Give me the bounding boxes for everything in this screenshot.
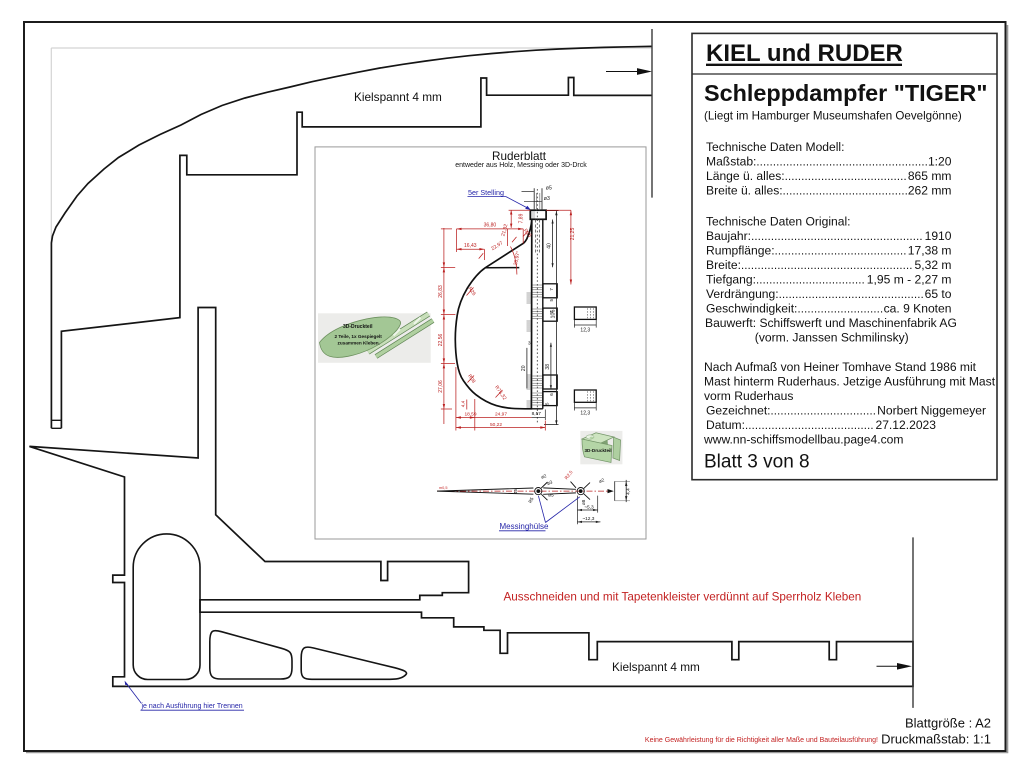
svg-text:65 to: 65 to [925,287,952,301]
svg-text:Länge ü. alles:: Länge ü. alles: [706,169,785,183]
svg-text:4,4: 4,4 [626,488,632,495]
svg-text:21,25: 21,25 [570,228,576,241]
svg-text:40: 40 [547,243,553,249]
svg-text:Breite:: Breite: [706,258,741,272]
svg-text:27,06: 27,06 [438,380,444,393]
svg-text:3: 3 [528,341,531,346]
svg-text:(vorm. Janssen Schmilinsky): (vorm. Janssen Schmilinsky) [755,331,909,345]
svg-text:Bauwerft: Schiffswerft und Mas: Bauwerft: Schiffswerft und Maschinenfabr… [705,316,957,330]
svg-text:Technische Daten Modell:: Technische Daten Modell: [706,140,844,154]
svg-text:7,89: 7,89 [518,213,524,223]
svg-text:Gezeichnet:: Gezeichnet: [706,404,771,418]
svg-text:26,83: 26,83 [438,285,444,298]
svg-text:262 mm: 262 mm [908,184,952,198]
svg-text:24,97: 24,97 [495,412,507,418]
svg-text:Mast hinterm Ruderhaus. Jetzig: Mast hinterm Ruderhaus. Jetzige Ausführu… [704,375,996,389]
svg-text:KIEL und RUDER: KIEL und RUDER [706,40,903,67]
svg-text:18,59: 18,59 [465,412,477,418]
svg-text:4,4: 4,4 [460,400,465,407]
svg-text:12,3: 12,3 [580,328,590,334]
svg-text:zusammen Kleben.: zusammen Kleben. [338,340,380,345]
svg-text:20: 20 [521,365,527,371]
svg-text:Kielspannt 4 mm: Kielspannt 4 mm [354,90,442,104]
svg-text:ø3: ø3 [544,196,550,202]
svg-text:Tiefgang:: Tiefgang: [706,273,756,287]
svg-text:Baujahr:: Baujahr: [706,229,751,243]
svg-text:Blattgröße : A2: Blattgröße : A2 [905,716,991,731]
svg-text:5er Stelling: 5er Stelling [468,188,504,197]
svg-text:8,57: 8,57 [532,411,542,417]
svg-text:36,80: 36,80 [484,223,497,229]
svg-text:Blatt 3 von 8: Blatt 3 von 8 [704,452,810,473]
svg-text:Ausschneiden und mit Tapetenkl: Ausschneiden und mit Tapetenkleister ver… [504,591,862,604]
svg-text:17,38 m: 17,38 m [908,244,952,258]
svg-text:5,32 m: 5,32 m [915,258,952,272]
svg-text:Norbert Niggemeyer: Norbert Niggemeyer [877,404,986,418]
svg-text:5: 5 [549,298,554,301]
svg-text:38: 38 [545,364,551,370]
svg-text:45: 45 [513,489,518,495]
svg-text:1:20: 1:20 [928,155,952,169]
svg-text:Keine Gewährleistung für die R: Keine Gewährleistung für die Richtigkeit… [645,737,878,744]
svg-text:Schleppdampfer "TIGER": Schleppdampfer "TIGER" [704,80,987,106]
svg-text:ø5: ø5 [546,186,552,192]
svg-text:5: 5 [545,402,550,405]
svg-text:865 mm: 865 mm [908,169,952,183]
svg-text:ø8: ø8 [581,499,586,505]
svg-text:27.12.2023: 27.12.2023 [875,418,936,432]
svg-text:16,43: 16,43 [464,243,477,249]
svg-text:Maßstab:: Maßstab: [706,155,756,169]
svg-text:je nach Ausführung hier Trenne: je nach Ausführung hier Trennen [141,703,243,710]
svg-text:12,3: 12,3 [580,411,590,417]
svg-text:Messinghülse: Messinghülse [500,522,549,531]
svg-text:(Liegt im Hamburger Museumshaf: (Liegt im Hamburger Museumshafen Oevelgö… [704,109,962,122]
svg-text:6: 6 [549,393,554,396]
svg-text:50,22: 50,22 [490,422,502,428]
svg-text:www.nn-schiffsmodellbau.page4.: www.nn-schiffsmodellbau.page4.com [703,433,903,447]
svg-text:3D-Druckteil: 3D-Druckteil [343,324,373,330]
svg-text:Datum:: Datum: [706,418,745,432]
svg-text:~12,3: ~12,3 [582,516,594,522]
svg-text:Verdrängung:: Verdrängung: [706,287,779,301]
svg-text:ø5: ø5 [548,493,554,498]
svg-text:Druckmaßstab: 1:1: Druckmaßstab: 1:1 [881,732,991,747]
svg-text:3D-Druckteil: 3D-Druckteil [585,448,612,453]
svg-text:Breite ü. alles:: Breite ü. alles: [706,184,783,198]
svg-text:Nach Aufmaß von Heiner Tomhave: Nach Aufmaß von Heiner Tomhave Stand 198… [704,360,977,374]
svg-text:ca. 9 Knoten: ca. 9 Knoten [884,302,952,316]
svg-text:Geschwindigkeit:: Geschwindigkeit: [706,302,797,316]
svg-text:m0,5: m0,5 [439,486,447,490]
svg-text:vorm Ruderhaus: vorm Ruderhaus [704,389,793,403]
svg-text:2 Teile, 1x Gespiegelt: 2 Teile, 1x Gespiegelt [335,334,383,339]
svg-text:1910: 1910 [925,229,952,243]
svg-text:entweder aus Holz, Messing ode: entweder aus Holz, Messing oder 3D-Drck [455,162,587,169]
svg-text:Rumpflänge:: Rumpflänge: [706,244,775,258]
svg-text:7: 7 [549,288,554,291]
svg-text:22,56: 22,56 [438,334,444,347]
svg-text:Kielspannt 4 mm: Kielspannt 4 mm [612,660,700,674]
svg-text:Technische Daten Original:: Technische Daten Original: [706,215,851,229]
svg-text:7: 7 [549,311,554,314]
svg-text:1,95 m - 2,27 m: 1,95 m - 2,27 m [867,273,952,287]
